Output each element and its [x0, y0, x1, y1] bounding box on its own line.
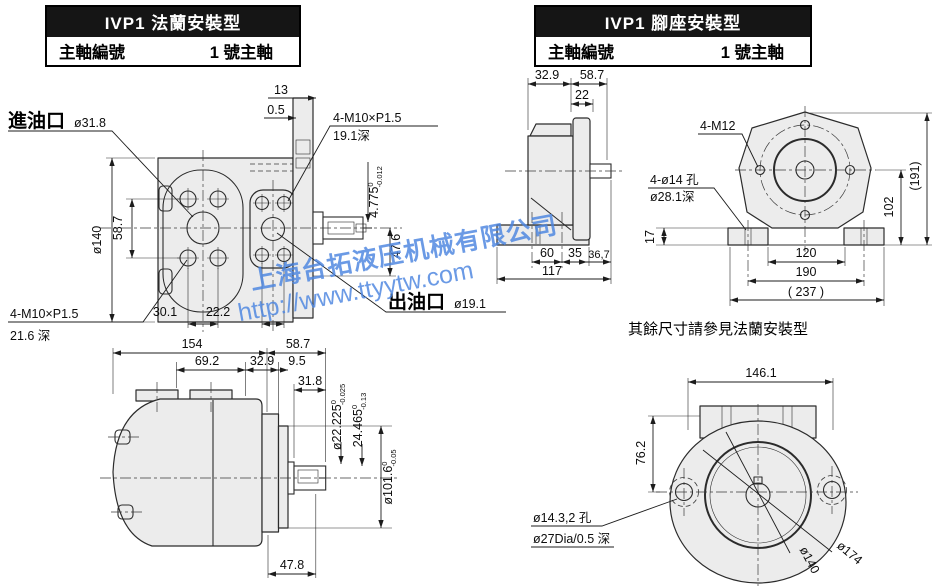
mounting-plate	[293, 98, 313, 318]
dim-60: 60	[540, 246, 554, 260]
dim-154: 154	[182, 337, 203, 351]
dim-120: 120	[796, 246, 817, 260]
dim-31-8: 31.8	[298, 374, 322, 388]
dim-237: ( 237 )	[788, 285, 824, 299]
dim-69-2: 69.2	[195, 354, 219, 368]
foot-front-view: 4-M12 4-ø14 孔 ø28.1深 17 (191) 102 120 19…	[643, 106, 932, 306]
label-thread-top-2: 19.1深	[333, 129, 370, 143]
label-rear-holes-1: ø14.3,2 孔	[533, 511, 592, 525]
linework: 13 0.5 ø140 58.7 4.7750-0.012 47.6 30.1 …	[0, 0, 935, 586]
dim-22-2: 22.2	[206, 305, 230, 319]
dim-146-1: 146.1	[745, 366, 776, 380]
dim-13: 13	[274, 83, 288, 97]
pump-body-side	[113, 399, 262, 546]
dim-key: 24.4650-0.13	[350, 393, 368, 448]
dim-76-2: 76.2	[634, 441, 648, 465]
dim-spigot: ø101.60-0.05	[380, 449, 398, 504]
dim-58-7: 58.7	[111, 216, 125, 240]
dim-32-9-foot: 32.9	[535, 68, 559, 82]
dim-35: 35	[568, 246, 582, 260]
dim-22: 22	[575, 88, 589, 102]
dim-47-8: 47.8	[280, 558, 304, 572]
flange-side-view: 154 58.7 69.2 32.9 9.5 31.8 ø22.2250-0.0…	[100, 337, 400, 578]
dim-36-7: 36,7	[588, 249, 609, 261]
foot-side-view: 32.9 58.7 22 60 35 36,7 117	[497, 68, 622, 284]
dim-17: 17	[643, 230, 657, 244]
note-see-flange-type: 其餘尺寸請參見法蘭安裝型	[628, 321, 808, 338]
foot-body-side	[528, 136, 573, 225]
label-4-m12: 4-M12	[700, 119, 735, 133]
label-thread-left-1: 4-M10×P1.5	[10, 307, 78, 321]
flange-end-view: ø140 ø174 76.2 146.1 ø14.3,2 孔 ø27Dia/0.…	[531, 366, 865, 586]
label-outlet-dia: ø19.1	[454, 297, 486, 311]
flange-front-view: 13 0.5 ø140 58.7 4.7750-0.012 47.6 30.1 …	[8, 83, 506, 343]
dim-9-5: 9.5	[288, 354, 305, 368]
cover-step	[262, 414, 279, 532]
dim-191: (191)	[908, 161, 922, 190]
drawing-sheet: IVP1 法蘭安裝型 主軸編號 1 號主軸 IVP1 腳座安裝型 主軸編號 1 …	[0, 0, 935, 586]
dim-30-1: 30.1	[153, 305, 177, 319]
dim-32-9-side: 32.9	[250, 354, 274, 368]
flange-plate-side	[279, 426, 289, 528]
dim-0-5: 0.5	[267, 103, 284, 117]
dim-190: 190	[796, 265, 817, 279]
dim-58-7-foot: 58.7	[580, 68, 604, 82]
foot-cover-side	[573, 118, 590, 240]
dim-102: 102	[882, 197, 896, 218]
label-thread-top-1: 4-M10×P1.5	[333, 111, 401, 125]
label-inlet-dia: ø31.8	[74, 116, 106, 130]
label-foot-holes-1: 4-ø14 孔	[650, 173, 699, 187]
label-thread-left-2: 21.6 深	[10, 329, 50, 343]
dim-4-775: 4.7750-0.012	[366, 166, 384, 218]
dim-58-7-side: 58.7	[286, 337, 310, 351]
label-outlet-port: 出油口	[388, 290, 445, 313]
dim-shaft-dia: ø22.2250-0.025	[329, 384, 347, 450]
dim-117: 117	[542, 264, 562, 278]
dim-47-6: 47.6	[389, 234, 403, 258]
label-rear-holes-2: ø27Dia/0.5 深	[533, 532, 610, 546]
label-inlet-port: 進油口	[8, 110, 65, 132]
dim-dia174: ø174	[834, 538, 865, 567]
label-foot-holes-2: ø28.1深	[650, 190, 694, 204]
dim-dia140: ø140	[90, 226, 104, 255]
